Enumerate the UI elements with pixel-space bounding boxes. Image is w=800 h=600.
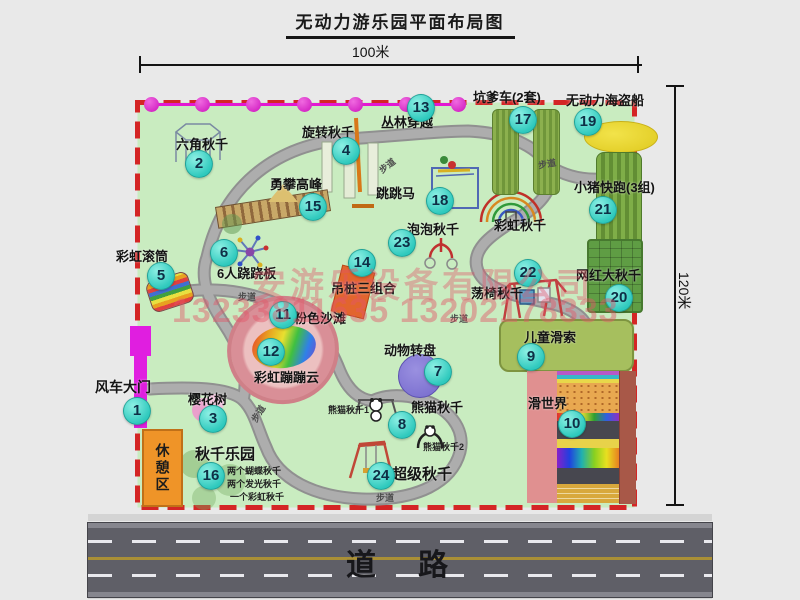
kengdie-car-track-2 xyxy=(533,109,560,195)
item-badge-24: 24 xyxy=(367,462,395,490)
item-badge-12: 12 xyxy=(257,338,285,366)
item-label-18: 跳跳马 xyxy=(376,183,415,202)
dimension-tick-right-top xyxy=(666,85,684,87)
slide-world-stripe-6 xyxy=(557,448,619,468)
item-label-14: 吊桩三组合 xyxy=(331,278,396,297)
item-badge-13: 13 xyxy=(407,94,435,122)
item-label-11: 粉色沙滩 xyxy=(294,308,346,327)
item-label-16: 秋千乐园 xyxy=(195,443,255,464)
item-badge-20: 20 xyxy=(605,284,633,312)
item-label-19: 无动力海盗船 xyxy=(566,90,644,109)
walkway-label-6: 步道 xyxy=(376,491,394,504)
item-badge-4: 4 xyxy=(332,137,360,165)
item-badge-6: 6 xyxy=(210,239,238,267)
item-badge-9: 9 xyxy=(517,343,545,371)
item-badge-18: 18 xyxy=(426,187,454,215)
item-badge-22: 22 xyxy=(514,259,542,287)
item-label-extra: 彩虹秋千 xyxy=(494,215,546,234)
road-label: 道 路 xyxy=(88,540,712,584)
dimension-line-top xyxy=(140,64,642,66)
item-badge-21: 21 xyxy=(589,196,617,224)
item-label-1: 风车大门 xyxy=(95,377,151,397)
item-badge-14: 14 xyxy=(348,249,376,277)
item-label-8: 熊猫秋千 xyxy=(411,397,463,416)
page-title-wrap: 无动力游乐园平面布局图 xyxy=(0,8,800,39)
sidewalk-top xyxy=(88,514,712,521)
slide-world-stripe-7 xyxy=(557,468,619,484)
rest-area-label: 休憩区 xyxy=(153,443,173,494)
slide-world-stripe-1 xyxy=(557,371,619,383)
road: 道 路 xyxy=(88,523,712,597)
item-badge-1: 1 xyxy=(123,397,151,425)
item-badge-17: 17 xyxy=(509,106,537,134)
dimension-tick-top-right xyxy=(637,56,639,73)
item-label-10: 滑世界 xyxy=(528,393,567,412)
item-badge-23: 23 xyxy=(388,229,416,257)
item-badge-7: 7 xyxy=(424,358,452,386)
rest-area-box: 休憩区 xyxy=(142,429,183,507)
item-label-17: 坑爹车(2套) xyxy=(473,87,541,106)
item-badge-11: 11 xyxy=(269,301,297,329)
item-badge-8: 8 xyxy=(388,411,416,439)
item-badge-5: 5 xyxy=(147,262,175,290)
dimension-tick-right-bottom xyxy=(666,504,684,506)
walkway-label-3: 步道 xyxy=(238,290,256,303)
item-badge-2: 2 xyxy=(185,150,213,178)
item-label-22: 荡椅秋千 xyxy=(471,283,523,302)
item-label-24: 超级秋千 xyxy=(392,463,452,484)
item-label-15: 勇攀高峰 xyxy=(270,174,322,193)
slide-world-left-strip xyxy=(527,371,557,503)
item-badge-19: 19 xyxy=(574,108,602,136)
dimension-tick-top-left xyxy=(139,56,141,73)
playground-plan-page: 无动力游乐园平面布局图 100米 120米 xyxy=(0,0,800,600)
item-label-23: 泡泡秋千 xyxy=(407,219,459,238)
page-title: 无动力游乐园平面布局图 xyxy=(286,8,515,39)
item-badge-15: 15 xyxy=(299,193,327,221)
walkway-label-5: 步道 xyxy=(450,312,468,325)
item-label-12: 彩虹蹦蹦云 xyxy=(254,367,319,386)
slide-world-stripe-8 xyxy=(557,484,619,503)
item-badge-10: 10 xyxy=(558,410,586,438)
slide-world-right-bar xyxy=(619,371,636,504)
item-badge-3: 3 xyxy=(199,405,227,433)
slide-world-stripe-5 xyxy=(557,439,619,448)
item-label-20: 网红大秋千 xyxy=(576,265,641,284)
dimension-label-height: 120米 xyxy=(674,272,694,309)
item-label-7: 动物转盘 xyxy=(384,340,436,359)
item-sublabel-8-2: 熊猫秋千2 xyxy=(423,440,464,453)
item-sublabel-16-3: 一个彩虹秋千 xyxy=(230,490,284,503)
item-sublabel-16-1: 两个蝴蝶秋千 xyxy=(227,464,281,477)
tree-icon xyxy=(222,214,242,234)
item-label-21: 小猪快跑(3组) xyxy=(574,177,655,196)
item-badge-16: 16 xyxy=(197,462,225,490)
windmill-gate-top xyxy=(130,326,151,356)
dimension-label-width: 100米 xyxy=(352,42,389,62)
item-sublabel-16-2: 两个发光秋千 xyxy=(227,477,281,490)
item-sublabel-8-1: 熊猫秋千1 xyxy=(328,403,369,416)
